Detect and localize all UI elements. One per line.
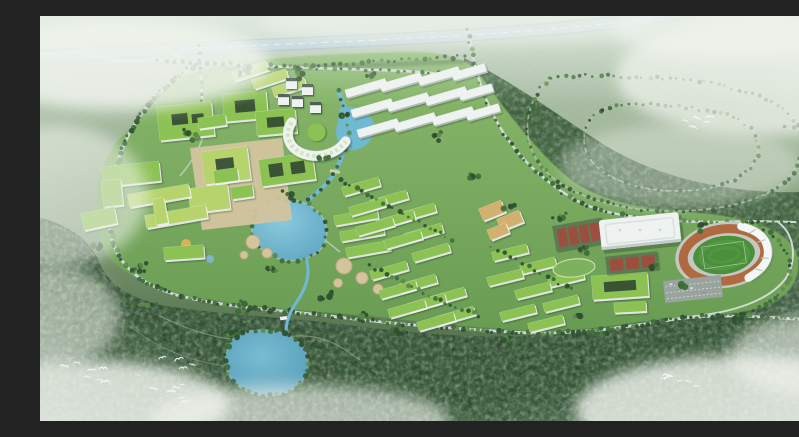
aerial-campus-rendering	[40, 16, 799, 421]
vignette	[40, 16, 799, 421]
